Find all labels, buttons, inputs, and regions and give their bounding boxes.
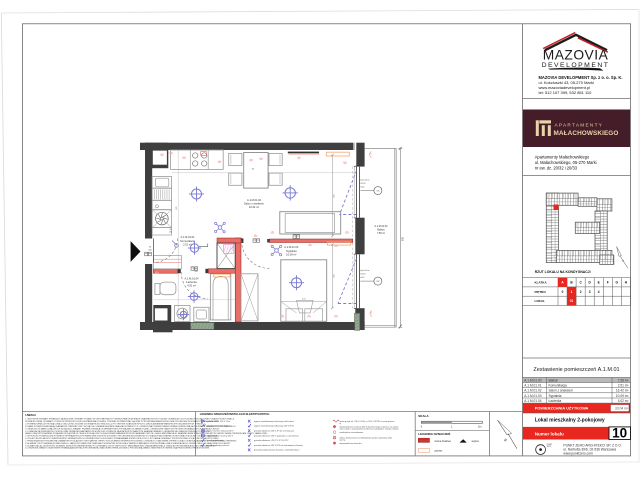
svg-text:A.1.M.01.01: A.1.M.01.01 (181, 235, 196, 239)
svg-text:Komunikacja: Komunikacja (180, 239, 195, 243)
svg-text:Zestawienie pomieszczeń A.1.M.: Zestawienie pomieszczeń A.1.M.01 (533, 367, 619, 373)
svg-text:h=85: h=85 (360, 277, 364, 279)
svg-text:A.1.M.01.02: A.1.M.01.02 (247, 198, 262, 202)
svg-text:200: 200 (194, 271, 197, 273)
svg-text:LEGENDA OZNACZEŃ: LEGENDA OZNACZEŃ (418, 431, 450, 436)
svg-text:łącznik pojedynczy: łącznik pojedynczy (207, 440, 224, 442)
svg-text:A.1.M.01.03: A.1.M.01.03 (284, 245, 299, 249)
svg-text:POWIERZCHNIA UŻYTKOWA: POWIERZCHNIA UŻYTKOWA (535, 406, 589, 411)
svg-text:7.58 m²: 7.58 m² (618, 378, 629, 382)
svg-text:tel: 512 107 399, 532 851 110: tel: 512 107 399, 532 851 110 (539, 90, 593, 95)
svg-text:Komunikacja: Komunikacja (549, 384, 567, 388)
svg-text:gniazdo odbiorcze 230 V, IP 44: gniazdo odbiorcze 230 V, IP 44, hermetyc… (254, 430, 295, 433)
svg-text:KLATKA: KLATKA (535, 281, 548, 285)
svg-text:tynk=4.0cm: tynk=4.0cm (360, 179, 370, 182)
svg-text:wypust oświetleniowy balkonowy: wypust oświetleniowy balkonowy 230 V IP4… (254, 425, 294, 428)
svg-text:F: F (607, 281, 609, 285)
svg-text:16.42 m²: 16.42 m² (249, 205, 259, 209)
svg-text:gniazdo elektr. 230 V 1-faz.: gniazdo elektr. 230 V 1-faz. (207, 420, 232, 423)
svg-text:2: 2 (580, 290, 582, 294)
svg-text:7.58 m²: 7.58 m² (377, 232, 385, 235)
svg-text:ryczny: ryczny (340, 440, 346, 442)
svg-text:Balkon: Balkon (549, 378, 559, 382)
svg-text:800: 800 (401, 236, 404, 241)
svg-text:MAZOVIA: MAZOVIA (543, 48, 609, 63)
svg-text:wypust oświetl. sufitowy 230 V: wypust oświetl. sufitowy 230 V (207, 430, 235, 433)
svg-text:150/20: 150/20 (360, 273, 366, 275)
svg-text:33.04 m²: 33.04 m² (615, 407, 629, 411)
svg-text:200: 200 (169, 232, 172, 234)
svg-text:ości h=110 m nad poziomem 230: ości h=110 m nad poziomem 230 V po zabud… (340, 428, 400, 431)
svg-text:doprowadzenie dzwonka: doprowadzenie dzwonka (340, 443, 363, 445)
svg-text:Numer lokalu: Numer lokalu (535, 431, 564, 436)
svg-text:ZERO: ZERO (547, 446, 552, 448)
svg-text:MAŁACHOWSKIEGO: MAŁACHOWSKIEGO (554, 130, 619, 137)
svg-text:01: 01 (570, 299, 574, 303)
svg-text:gniazdo odbiorcze 230 V IP20 d: gniazdo odbiorcze 230 V IP20 do zabudowy… (254, 445, 303, 447)
svg-text:10.09 m²: 10.09 m² (286, 252, 296, 256)
svg-text:APARTAMENTY: APARTAMENTY (555, 123, 604, 128)
svg-text:gniazdo odbiorcze 230 V, podwó: gniazdo odbiorcze 230 V, podwójne z uzie… (254, 435, 299, 437)
svg-text:Salon z aneksem: Salon z aneksem (244, 202, 264, 206)
svg-text:10.09 m²: 10.09 m² (616, 394, 629, 398)
svg-text:A.1.M.01.04: A.1.M.01.04 (185, 277, 200, 281)
svg-text:RZUT LOKALU NA KONDYGNACJI: RZUT LOKALU NA KONDYGNACJI (535, 270, 591, 274)
svg-text:gniazdo przyłączeniowe dzwonka: gniazdo przyłączeniowe dzwonka i wideodo… (254, 450, 299, 452)
svg-text:3: 3 (589, 290, 591, 294)
svg-text:h=85: h=85 (360, 186, 364, 188)
svg-text:SKALA: SKALA (418, 414, 429, 418)
svg-text:A.1.M.01.03: A.1.M.01.03 (524, 394, 541, 398)
svg-text:nr ew. dz. 20/32 i 20/33: nr ew. dz. 20/32 i 20/33 (535, 166, 578, 171)
svg-text:2m: 2m (478, 426, 481, 429)
svg-text:ul. Małachowskiego, 05-270 Mar: ul. Małachowskiego, 05-270 Marki (535, 160, 597, 165)
svg-text:Sypialnia: Sypialnia (286, 249, 297, 253)
svg-text:10: 10 (612, 426, 627, 441)
svg-text:10. WSZELKIE ZMIANY LOKATORSKI: 10. WSZELKIE ZMIANY LOKATORSKIE WYMAGAJĄ… (25, 447, 210, 450)
svg-text:Łazienka: Łazienka (549, 399, 562, 403)
svg-text:gniazdo elektr. 400 V 3-faz.: gniazdo elektr. 400 V 3-faz. (207, 425, 232, 428)
svg-text:UWAGI: UWAGI (25, 413, 35, 417)
svg-text:wejście: wejście (472, 441, 480, 443)
svg-text:rozdzielnica mieszkaniowa: rozdzielnica mieszkaniowa (340, 432, 365, 434)
svg-text:LOKAL: LOKAL (535, 299, 545, 303)
svg-text:gzymsy: gzymsy (435, 451, 444, 453)
svg-text:Łazienka: Łazienka (186, 280, 197, 284)
svg-text:Apartamenty Małachowskiego: Apartamenty Małachowskiego (535, 155, 590, 160)
svg-text:www.punktzero.com: www.punktzero.com (563, 452, 593, 456)
svg-text:2.51 m²: 2.51 m² (618, 384, 629, 388)
svg-text:wypust oświetleniowy kinkietow: wypust oświetleniowy kinkietowy nad lust… (254, 420, 294, 423)
svg-text:4.02 m²: 4.02 m² (187, 284, 196, 288)
svg-text:gniazdo odbiorcze: ZM, TV, IP: gniazdo odbiorcze: ZM, TV, IP 20, RTV (254, 440, 289, 442)
svg-text:E: E (598, 281, 600, 285)
svg-text:0: 0 (562, 290, 564, 294)
svg-text:ściana działowa: ściana działowa (435, 441, 452, 443)
svg-text:listwa grzyb. ok. 230 V, 16 A,: listwa grzyb. ok. 230 V, 16 A, ca 30%, 1… (340, 420, 395, 423)
svg-text:tablica teletechniczna multime: tablica teletechniczna multimedialna pun… (340, 436, 393, 439)
svg-text:tynk=4.0cm: tynk=4.0cm (360, 269, 370, 272)
svg-text:150/20: 150/20 (360, 183, 366, 185)
svg-text:Salon z aneksem: Salon z aneksem (549, 389, 574, 393)
svg-text:1: 1 (571, 290, 573, 294)
svg-text:A.1.M.01.04: A.1.M.01.04 (524, 399, 541, 403)
svg-text:A.1.M.01.00: A.1.M.01.00 (524, 378, 541, 382)
svg-text:Lokal mieszkalny 2-pokojowy: Lokal mieszkalny 2-pokojowy (535, 418, 605, 424)
svg-text:4.02 m²: 4.02 m² (618, 399, 629, 403)
svg-text:4: 4 (598, 290, 600, 294)
svg-text:A.1.M.01.01: A.1.M.01.01 (524, 384, 541, 388)
svg-text:Sypialnia: Sypialnia (549, 394, 562, 398)
svg-text:16.42 m²: 16.42 m² (616, 389, 629, 393)
svg-text:wypust oświetl. ścienny 230 V: wypust oświetl. ścienny 230 V (207, 434, 234, 437)
svg-text:PIĘTRO: PIĘTRO (535, 290, 547, 294)
svg-text:łącznik podwójny świeczn.: łącznik podwójny świeczn. (207, 445, 231, 447)
svg-text:A.1.M.01.02: A.1.M.01.02 (524, 389, 541, 393)
